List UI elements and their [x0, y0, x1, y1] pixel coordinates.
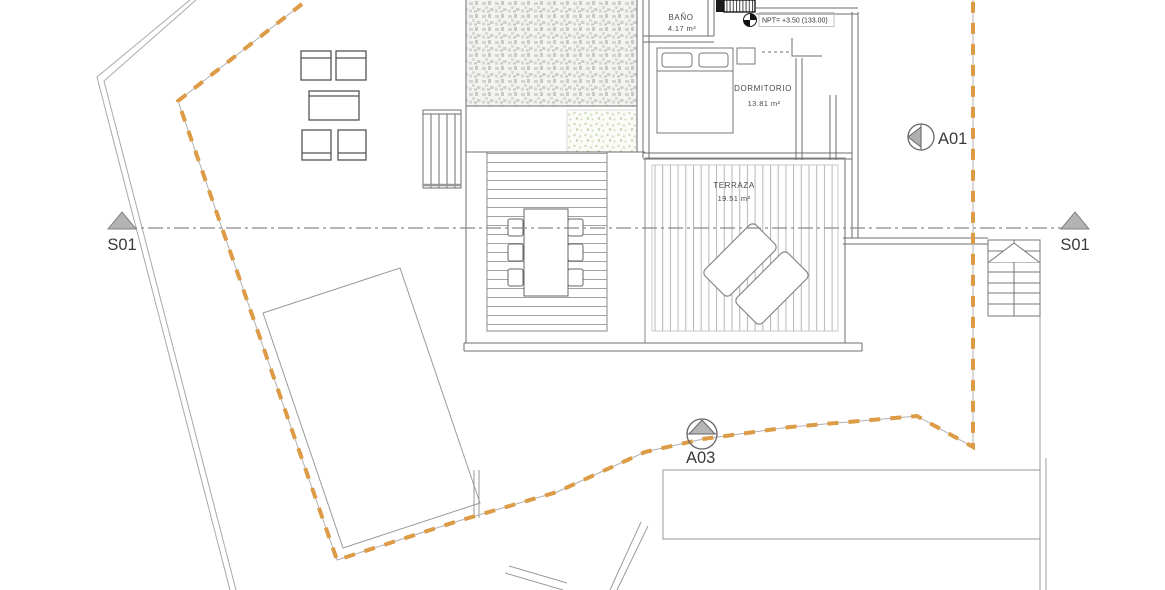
lounge-chair	[338, 130, 366, 160]
room-area: 19.51 m²	[718, 194, 751, 203]
level-symbol-icon	[750, 14, 757, 21]
dining-chair	[508, 269, 523, 286]
pillow	[699, 53, 728, 67]
retaining-wall-line	[610, 522, 648, 590]
room-label-bano: BAÑO 4.17 m²	[668, 13, 696, 33]
elevation-marker-a01: A01	[908, 124, 967, 150]
elevation-marker-label: A03	[686, 449, 715, 467]
lower-terrace-slab	[474, 316, 1046, 590]
room-name: DORMITORIO	[734, 84, 792, 93]
lounge-furniture-set	[301, 51, 366, 160]
level-marker: NPT= +3.50 (133.00)	[744, 13, 835, 27]
skylight-grille	[724, 0, 755, 12]
dining-table	[524, 209, 568, 296]
retaining-wall-line	[505, 566, 567, 590]
section-marker-right: S01	[1060, 212, 1089, 254]
planting-area	[567, 110, 637, 152]
nightstand	[737, 48, 755, 64]
lounge-chair	[336, 51, 366, 80]
level-marker-text: NPT= +3.50 (133.00)	[762, 18, 828, 25]
lounge-chair	[301, 51, 331, 80]
dining-chair	[568, 244, 583, 261]
lounge-chair	[302, 130, 331, 160]
room-label-dormitorio: DORMITORIO 13.81 m²	[734, 84, 792, 108]
elevation-marker-a03: A03	[686, 419, 717, 467]
wall-solid-segment	[716, 0, 724, 12]
section-triangle-icon	[1061, 212, 1089, 229]
section-marker-left: S01	[107, 212, 136, 254]
room-area: 4.17 m²	[668, 24, 696, 33]
stairs	[988, 240, 1040, 316]
room-area: 13.81 m²	[748, 99, 781, 108]
room-name: TERRAZA	[713, 181, 755, 190]
section-marker-label: S01	[1060, 236, 1089, 254]
pillow	[662, 53, 692, 67]
section-marker-label: S01	[107, 236, 136, 254]
elevation-marker-label: A01	[938, 130, 967, 148]
side-louver-steps	[423, 110, 461, 188]
dining-chair	[508, 244, 523, 261]
floor-plan-sheet: NPT= +3.50 (133.00) BAÑO 4.17 m² DORMITO…	[0, 0, 1165, 590]
dining-chair	[568, 269, 583, 286]
room-name: BAÑO	[668, 13, 693, 22]
dining-set	[508, 209, 583, 296]
floor-plan-drawing: NPT= +3.50 (133.00) BAÑO 4.17 m² DORMITO…	[0, 0, 1165, 590]
garden-plot-outline	[263, 268, 480, 548]
level-symbol-icon	[744, 20, 751, 27]
gravel-patio-area	[466, 0, 637, 106]
section-triangle-icon	[108, 212, 136, 229]
site-boundary-line	[97, 0, 236, 590]
